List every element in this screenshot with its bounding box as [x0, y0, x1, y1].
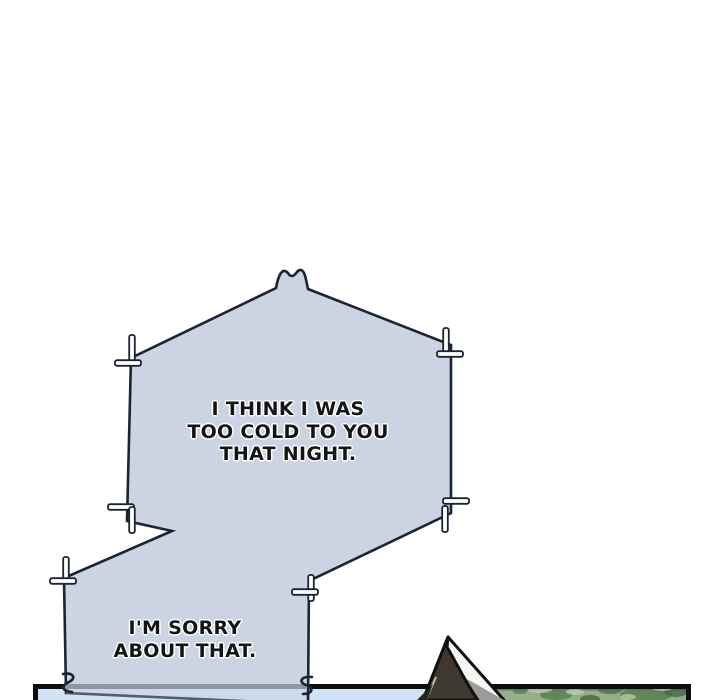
stitch-mark-left-lower [108, 504, 135, 533]
stitch-mark-bubble2-left [50, 557, 76, 584]
speech-text-2: I'M SORRY ABOUT THAT. [75, 617, 295, 662]
speech-text-1: I THINK I WAS TOO COLD TO YOU THAT NIGHT… [168, 398, 408, 466]
comic-page: I THINK I WAS TOO COLD TO YOU THAT NIGHT… [0, 0, 720, 700]
bubble-panel-tint [66, 689, 306, 700]
stitch-mark-top-left [115, 335, 141, 366]
tent-peak [417, 637, 504, 700]
comic-artwork [0, 0, 720, 700]
foliage-blob [620, 694, 636, 700]
foliage-blob [566, 689, 584, 695]
stitch-mark-right-lower [442, 498, 469, 532]
